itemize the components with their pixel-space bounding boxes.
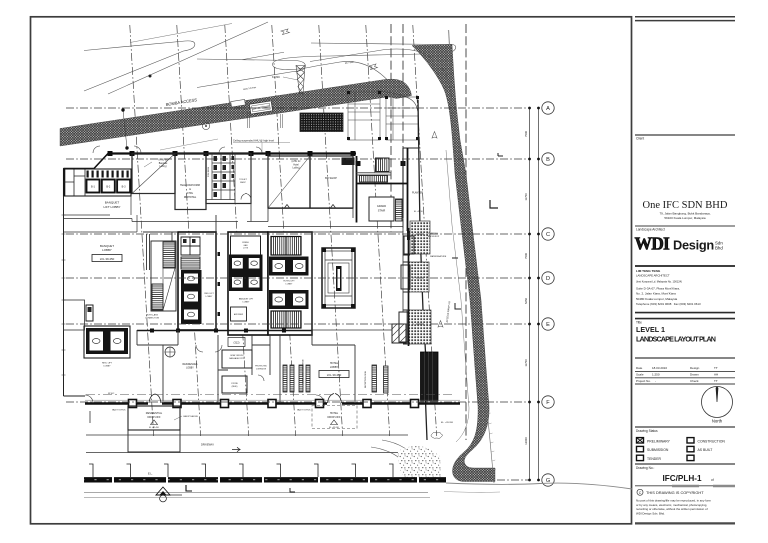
svg-text:Ceiling suspended AHU @ high l: Ceiling suspended AHU @ high level [233, 140, 274, 143]
svg-text:TT: TT [714, 379, 718, 383]
svg-text:Design: Design [673, 238, 714, 253]
svg-text:WDI: WDI [635, 234, 671, 254]
svg-text:CTRL: CTRL [187, 192, 194, 195]
svg-text:or by any means, electronic, m: or by any means, electronic, mechanical,… [636, 503, 707, 507]
svg-text:VALET ST.PICK: VALET ST.PICK [297, 409, 311, 412]
svg-text:7500: 7500 [524, 253, 528, 259]
svg-text:RECEPTION SIGN: RECEPTION SIGN [365, 370, 367, 388]
svg-text:VALET ST.PICK: VALET ST.PICK [112, 409, 126, 412]
svg-text:BR SHOP: BR SHOP [325, 176, 337, 180]
svg-text:BACKDROP: BACKDROP [428, 235, 440, 238]
svg-text:C: C [639, 491, 642, 495]
svg-text:Hotel: Hotel [293, 163, 299, 166]
svg-text:DROP-OFF: DROP-OFF [147, 416, 161, 419]
svg-text:RM/HOTEL: RM/HOTEL [184, 196, 197, 199]
svg-text:F: F [546, 400, 550, 406]
svg-text:Drawing No.:: Drawing No.: [636, 466, 655, 470]
svg-text:11750: 11750 [524, 193, 528, 201]
svg-text:EL. +39.208: EL. +39.208 [441, 422, 454, 424]
svg-text:12000: 12000 [524, 437, 528, 445]
svg-text:LANDSCAPE ARCHITECT: LANDSCAPE ARCHITECT [636, 274, 670, 278]
svg-text:LOBBY: LOBBY [206, 296, 213, 298]
svg-text:(312): (312) [233, 341, 239, 345]
svg-text:LIFT LOBBY: LIFT LOBBY [104, 205, 121, 209]
svg-text:SUBMISSION: SUBMISSION [647, 448, 669, 452]
svg-text:TELECOM/COMM: TELECOM/COMM [180, 184, 200, 187]
svg-text:RES. LIFT: RES. LIFT [204, 293, 214, 295]
svg-text:Client: Client [636, 137, 644, 141]
svg-text:FINISH: FINISH [242, 242, 249, 244]
svg-text:No. 2, Jalan Kiara, Mont'Kiara: No. 2, Jalan Kiara, Mont'Kiara [636, 292, 676, 296]
svg-text:7500: 7500 [524, 131, 528, 137]
svg-text:B-1: B-1 [91, 186, 96, 189]
svg-text:RM-P: RM-P [240, 182, 246, 184]
svg-text:IFC/PLH-1: IFC/PLH-1 [662, 474, 702, 483]
svg-text:DROP-OFF: DROP-OFF [327, 416, 341, 419]
svg-text:LIM TENG TENG: LIM TENG TENG [636, 269, 661, 273]
svg-text:5250: 5250 [524, 298, 528, 304]
svg-text:GRAND: GRAND [377, 204, 386, 208]
svg-text:CONSTRUCTION: CONSTRUCTION [698, 439, 726, 443]
svg-text:STAIR: STAIR [378, 209, 386, 213]
svg-text:Check: Check [690, 379, 699, 383]
svg-text:1:250: 1:250 [652, 373, 660, 377]
svg-text:FOH RM-M: FOH RM-M [208, 166, 210, 177]
svg-text:LOTS: LOTS [243, 248, 249, 250]
svg-text:Suite D-3A-07, Plaza Mont'Kiar: Suite D-3A-07, Plaza Mont'Kiara, [636, 287, 680, 291]
svg-text:(RESI): (RESI) [232, 386, 238, 388]
svg-text:(AHU for: (AHU for [292, 160, 301, 163]
svg-text:Scale: Scale [636, 373, 644, 377]
svg-text:WATERFEATURE: WATERFEATURE [430, 255, 447, 258]
svg-text:B: B [546, 157, 550, 163]
svg-text:RESIDENCES: RESIDENCES [183, 364, 198, 366]
svg-text:REG. LIFT: REG. LIFT [102, 363, 113, 365]
svg-text:LOBBY: LOBBY [104, 366, 112, 368]
svg-text:59100 Kuala Lumpur, Malaysia: 59100 Kuala Lumpur, Malaysia [664, 216, 706, 220]
svg-text:BANQUET LIFT: BANQUET LIFT [239, 298, 254, 301]
svg-text:50480 Kuala Lumpur, Malaysia: 50480 Kuala Lumpur, Malaysia [636, 297, 678, 301]
svg-text:DRIVEWAY: DRIVEWAY [201, 444, 214, 447]
svg-text:recording or otherwise, withou: recording or otherwise, without the writ… [636, 507, 708, 511]
svg-text:TENDER: TENDER [647, 457, 661, 461]
svg-text:LOBBY: LOBBY [102, 248, 112, 252]
svg-text:(Inst Korporat Ld. Malaysia N: (Inst Korporat Ld. Malaysia No. 100124) [636, 279, 682, 283]
svg-text:E.L.: E.L. [148, 472, 153, 476]
svg-text:WDI Design Sdn. Bhd.: WDI Design Sdn. Bhd. [636, 512, 665, 516]
svg-text:D: D [546, 276, 550, 282]
svg-text:CANOPY ABOVE: CANOPY ABOVE [183, 415, 199, 418]
svg-text:Telephone (603) 6201 0608 Fa: Telephone (603) 6201 0608 Fax (603) 6201… [636, 302, 701, 306]
svg-text:B-3: B-3 [122, 186, 127, 189]
svg-text:PRELIMINARY: PRELIMINARY [647, 439, 671, 443]
svg-text:HOTEL: HOTEL [330, 362, 339, 365]
svg-text:Title: Title [636, 320, 642, 324]
svg-text:B-2: B-2 [106, 186, 111, 189]
svg-text:PLANTER: PLANTER [412, 192, 423, 195]
svg-text:HOTEL: HOTEL [330, 412, 339, 415]
svg-text:of: of [711, 478, 714, 482]
svg-text:KIOSK: KIOSK [272, 75, 280, 79]
svg-text:PROTECTED: PROTECTED [255, 366, 267, 368]
svg-text:C: C [546, 232, 550, 238]
svg-text:HOTEL SIGN CONCIERGE: HOTEL SIGN CONCIERGE [303, 359, 305, 384]
svg-text:THIS DRAWING IS COPYRIGHT: THIS DRAWING IS COPYRIGHT [646, 490, 704, 495]
svg-text:RESIDENTIAL: RESIDENTIAL [146, 412, 163, 415]
svg-text:LOBBY: LOBBY [330, 366, 339, 369]
svg-text:BAGGAGE STOR: BAGGAGE STOR [229, 357, 245, 360]
svg-text:EL +39.450: EL +39.450 [149, 427, 159, 429]
svg-text:PLANTING: PLANTING [428, 232, 438, 235]
svg-text:Project No.: Project No. [636, 379, 651, 383]
svg-text:BOAT OFFICE/: BOAT OFFICE/ [231, 354, 244, 357]
svg-text:TT: TT [714, 366, 718, 370]
svg-text:Lobby): Lobby) [292, 168, 299, 170]
svg-text:HOTEL-ASS: HOTEL-ASS [146, 314, 158, 317]
svg-text:-: - [655, 379, 656, 383]
svg-text:EL +39.10: EL +39.10 [414, 211, 423, 213]
svg-text:LOBBY: LOBBY [286, 284, 293, 286]
svg-text:AH: AH [714, 373, 718, 377]
svg-text:Bhd: Bhd [715, 246, 723, 251]
svg-text:Date: Date [636, 366, 643, 370]
svg-text:Design: Design [690, 366, 700, 370]
svg-text:LEVEL 1: LEVEL 1 [636, 325, 665, 334]
svg-text:No part of this drawing/file m: No part of this drawing/file may be repr… [636, 498, 712, 502]
svg-text:CORRIDOR: CORRIDOR [256, 368, 267, 370]
svg-text:MAID: MAID [345, 161, 351, 164]
svg-text:North: North [712, 419, 723, 424]
svg-text:EL +39.260: EL +39.260 [329, 427, 339, 429]
svg-text:AS BUILT: AS BUILT [698, 448, 713, 452]
svg-text:LVL 39.450: LVL 39.450 [327, 373, 342, 377]
svg-text:Landscape Architect: Landscape Architect [636, 228, 665, 232]
svg-text:LOBBY: LOBBY [186, 367, 194, 369]
svg-text:CONNECTION: CONNECTION [145, 318, 159, 320]
svg-text:Drawn: Drawn [690, 373, 699, 377]
svg-text:AIR RISER: AIR RISER [234, 313, 244, 316]
svg-text:E: E [546, 322, 550, 328]
svg-text:TOILET: TOILET [239, 179, 247, 181]
svg-text:STORE: STORE [231, 383, 238, 385]
svg-text:LOBBY: LOBBY [243, 302, 250, 304]
svg-text:One IFC SDN BHD: One IFC SDN BHD [643, 200, 728, 211]
svg-text:LANDSCAPE LAYOUT PLAN: LANDSCAPE LAYOUT PLAN [636, 335, 716, 344]
svg-text:Drawing Status: Drawing Status [636, 429, 658, 433]
svg-text:A: A [546, 106, 550, 112]
svg-text:Lobby): Lobby) [159, 166, 166, 168]
svg-text:HOTEL LIFT: HOTEL LIFT [283, 281, 295, 283]
svg-text:18.03.2010: 18.03.2010 [652, 366, 667, 370]
svg-text:Banquet: Banquet [159, 162, 168, 165]
svg-text:11750: 11750 [524, 359, 528, 367]
svg-text:LVL 39.450: LVL 39.450 [100, 257, 115, 261]
